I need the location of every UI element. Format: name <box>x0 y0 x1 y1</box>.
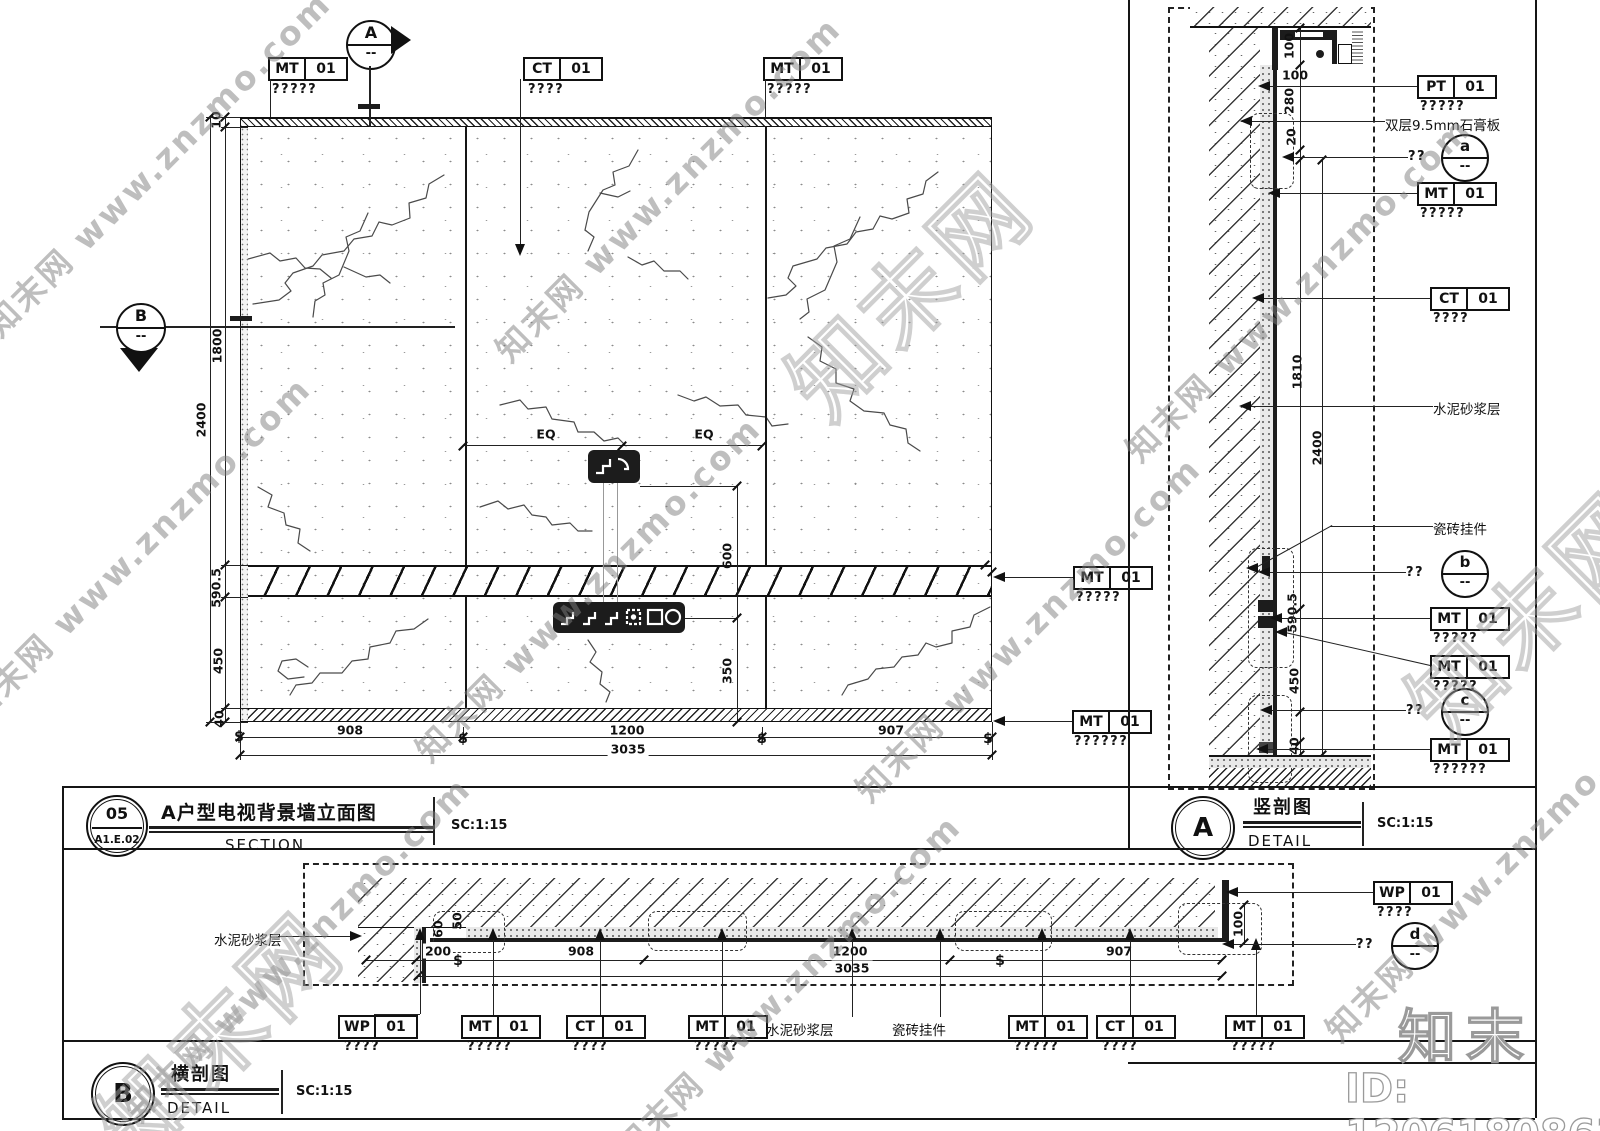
scale-label: SC:1:15 <box>1377 816 1433 831</box>
dim-break: $ <box>983 731 993 747</box>
leader-line <box>520 79 521 247</box>
clip-zone <box>1250 113 1294 189</box>
leader-line <box>940 938 941 1017</box>
tag-code: MT <box>690 1017 726 1037</box>
dim-line <box>1300 28 1301 755</box>
arrow-left-icon <box>1239 401 1251 411</box>
tag-code: CT <box>525 59 561 79</box>
detail-title-bubble: A <box>1171 796 1235 860</box>
arrow-left-icon <box>1282 152 1294 162</box>
tag-code: MT <box>463 1017 499 1037</box>
tag-num: 01 <box>1134 1017 1174 1037</box>
ceiling-strip <box>240 117 992 127</box>
material-tag: MT 01 <box>268 57 348 81</box>
floor-screed <box>1209 757 1371 768</box>
downlight-dot <box>1316 50 1324 58</box>
tag-note: ?????? <box>1074 734 1128 749</box>
arrow-left-icon <box>993 716 1005 726</box>
leader-line <box>1270 572 1406 573</box>
arrow-left-icon <box>1260 705 1272 715</box>
drawing-title: A户型电视背景墙立面图 <box>161 798 377 825</box>
detail-letter: d <box>1393 924 1437 947</box>
dim-break: $ <box>757 731 767 747</box>
eq-label-left: EQ <box>536 427 555 442</box>
arrow-left-icon <box>1222 939 1234 949</box>
panel-divider <box>765 597 767 708</box>
tag-code: CT <box>1098 1017 1134 1037</box>
detail-dash: -- <box>1393 947 1437 964</box>
dim-break: $ <box>234 729 244 745</box>
leader-line <box>1264 298 1430 299</box>
title-tick <box>433 797 435 845</box>
detail-letter: b <box>1443 552 1487 575</box>
tag-num: 01 <box>561 59 601 79</box>
cad-sheet: EQ EQ 600 350 2400 10 1800 590.5 450 40 <box>0 0 1600 1131</box>
arrow-up-icon <box>1037 928 1047 940</box>
tag-code: MT <box>1419 184 1455 204</box>
tag-num: 01 <box>604 1017 644 1037</box>
leader-line <box>1294 157 1408 158</box>
detail-bubble-d: d -- <box>1391 922 1439 970</box>
leader-line <box>1042 938 1043 1015</box>
tag-note: ????? <box>272 82 317 97</box>
tile-layer <box>430 938 1222 942</box>
metal-band <box>248 565 992 597</box>
detail-title: 横剖图 <box>171 1060 231 1086</box>
tag-note: ????? <box>1420 99 1465 114</box>
detail-subtitle: DETAIL <box>167 1099 231 1117</box>
eq-label-right: EQ <box>694 427 713 442</box>
material-tag: MT 01 <box>1073 566 1153 590</box>
leader-line <box>1251 406 1433 407</box>
leader-line <box>1000 721 1072 722</box>
tag-code: WP <box>340 1017 376 1037</box>
leader-line <box>1272 710 1406 711</box>
title-rule <box>149 826 433 829</box>
dim-60: 60 <box>431 920 446 937</box>
leader-line <box>278 936 352 937</box>
tag-code: MT <box>1432 657 1468 677</box>
tag-num: 01 <box>1468 740 1508 760</box>
dim-w2: 1200 <box>610 723 645 738</box>
dim-1810: 1810 <box>1290 355 1305 390</box>
dim-280: 280 <box>1282 88 1297 114</box>
leader-line <box>270 79 271 117</box>
tag-code: MT <box>1227 1017 1263 1037</box>
mortar-left-label: 水泥砂浆层 <box>214 929 282 949</box>
ext-line <box>221 127 248 128</box>
tag-num: 01 <box>1111 568 1151 588</box>
tag-code: PT <box>1419 77 1455 97</box>
clip-zone <box>648 911 747 951</box>
arrow-left-icon <box>1275 627 1287 637</box>
marker-letter: B <box>118 305 164 329</box>
tag-num: 01 <box>1110 712 1150 732</box>
image-id: ID: 1206180863 <box>1345 1066 1600 1131</box>
section-marker-a: A -- <box>346 20 396 70</box>
material-tag: CT 01 <box>1430 287 1510 311</box>
dim-lower: 450 <box>211 648 226 674</box>
arrow-left-icon <box>1252 293 1264 303</box>
detail-title: 竖剖图 <box>1253 793 1313 819</box>
conduit-line <box>617 483 618 602</box>
material-tag: MT 01 <box>1430 738 1510 762</box>
arrow-left-icon <box>1258 81 1270 91</box>
site-logo: 知末 <box>1398 990 1534 1074</box>
dim-200: 200 <box>423 944 453 959</box>
material-tag: CT 01 <box>523 57 603 81</box>
floor-hatch <box>1209 768 1371 786</box>
material-tag: MT 01 <box>1430 607 1510 631</box>
ceiling-slab-hatch <box>1190 7 1371 28</box>
leader-line <box>1234 944 1356 945</box>
tag-code: MT <box>1074 712 1110 732</box>
curtain-fabric <box>1352 30 1363 64</box>
dim-907: 907 <box>1106 944 1132 959</box>
dim-break: $ <box>995 953 1005 969</box>
tag-num: 01 <box>1455 184 1495 204</box>
arrow-right-icon <box>350 931 362 941</box>
media-console <box>553 602 685 633</box>
eq-dim-line <box>463 445 762 446</box>
ceiling-edge <box>1272 28 1278 70</box>
detail-letter: a <box>1443 136 1487 159</box>
dim-line <box>737 486 738 722</box>
tag-note: ?????? <box>1433 762 1487 777</box>
title-tick <box>1362 802 1364 846</box>
tag-code: MT <box>765 59 801 79</box>
material-tag: CT 01 <box>566 1015 646 1039</box>
tag-note: ????? <box>1076 590 1121 605</box>
dim-total-height: 2400 <box>194 403 209 438</box>
tag-num: 01 <box>1455 77 1495 97</box>
material-tag: MT 01 <box>1008 1015 1088 1039</box>
dim-1200: 1200 <box>833 944 868 959</box>
dim-console-height: 350 <box>720 658 735 684</box>
title-rule <box>149 831 433 833</box>
tag-num: 01 <box>306 59 346 79</box>
dim-break: $ <box>453 953 463 969</box>
leader-line <box>1252 121 1385 122</box>
tag-note: ???? <box>1433 311 1469 326</box>
mortar-layer <box>466 927 1218 938</box>
arrow-left-icon <box>1268 188 1280 198</box>
tv-socket-box <box>588 450 640 483</box>
arrow-left-icon <box>1246 563 1258 573</box>
arrow-up-icon <box>935 928 945 940</box>
mortar-label: 水泥砂浆层 <box>1433 398 1501 418</box>
leader-line <box>1268 749 1430 750</box>
detail-bubble-c: c -- <box>1441 688 1489 736</box>
dim-base: 40 <box>212 710 227 727</box>
dim-upper: 1800 <box>210 329 225 364</box>
section-cut-tick <box>358 104 380 109</box>
tag-code: WP <box>1375 883 1411 903</box>
leader-line <box>1330 526 1433 527</box>
material-tag: MT 01 <box>1417 182 1497 206</box>
material-tag: WP 01 <box>1373 881 1453 905</box>
arrow-up-icon <box>488 928 498 940</box>
dim-top: 10 <box>209 111 224 128</box>
leader-line <box>685 618 737 619</box>
leader-line <box>1238 892 1373 893</box>
dim-line <box>366 960 1222 961</box>
arrow-left-icon <box>1270 613 1282 623</box>
frame-line <box>62 786 64 1118</box>
frame-line <box>62 848 1535 850</box>
detail-bubble-b: b -- <box>1441 550 1489 598</box>
clip-zone <box>1178 903 1262 955</box>
title-rule <box>161 1088 279 1091</box>
wall-edge-strip <box>240 127 248 722</box>
detail-bubble-a: a -- <box>1441 134 1489 182</box>
material-tag: MT 01 <box>1430 655 1510 679</box>
frame-line <box>1535 0 1537 1118</box>
section-cut-line <box>369 66 371 127</box>
leader-line <box>1256 948 1257 1015</box>
scale-label: SC:1:15 <box>296 1084 352 1099</box>
tag-code: MT <box>1432 609 1468 629</box>
title-tick <box>281 1070 283 1114</box>
detail-mark: ?? <box>1406 703 1424 718</box>
tag-note: ???? <box>1377 905 1413 920</box>
dim-100-side: 100 <box>1282 68 1308 83</box>
dim-total-width: 3035 <box>608 742 649 757</box>
leader-line <box>420 938 421 1014</box>
dim-w3: 907 <box>878 723 904 738</box>
leader-line <box>1280 193 1417 194</box>
curtain-box-side <box>1332 30 1337 64</box>
arrow-down-icon <box>515 244 525 256</box>
frame-line <box>62 786 1535 788</box>
detail-mark: ?? <box>1356 937 1374 952</box>
tag-num: 01 <box>1046 1017 1086 1037</box>
tag-num: 01 <box>801 59 841 79</box>
title-rule <box>1243 821 1361 824</box>
tag-code: CT <box>568 1017 604 1037</box>
section-cut-tick <box>230 316 252 321</box>
dim-line <box>225 117 226 722</box>
panel-divider <box>765 127 767 565</box>
panel-divider <box>465 127 467 565</box>
gypsum-label: 双层9.5mm石膏板 <box>1385 114 1500 134</box>
arrow-up-icon <box>847 928 857 940</box>
material-tag: MT 01 <box>1225 1015 1305 1039</box>
material-tag: MT 01 <box>1072 710 1152 734</box>
tag-code: CT <box>1432 289 1468 309</box>
marker-arrow-icon <box>391 26 411 54</box>
conduit-line <box>603 483 604 602</box>
title-rule <box>1243 826 1361 828</box>
frame-line <box>62 1118 1535 1120</box>
detail-letter: A <box>1177 802 1229 854</box>
dim-450: 450 <box>1287 668 1302 694</box>
material-tag: MT 01 <box>688 1015 768 1039</box>
ext-line <box>221 565 248 566</box>
leader-line <box>765 79 766 117</box>
tag-num: 01 <box>1468 657 1508 677</box>
material-tag: MT 01 <box>763 57 843 81</box>
material-tag: PT 01 <box>1417 75 1497 99</box>
arrow-up-icon <box>1125 928 1135 940</box>
detail-mark: ?? <box>1408 149 1426 164</box>
leader-line <box>600 938 601 1015</box>
tile-clip <box>1258 600 1274 612</box>
arrow-left-icon <box>1240 116 1252 126</box>
scale-label: SC:1:15 <box>451 818 507 833</box>
detail-dash: -- <box>1443 159 1487 176</box>
dim-100-top: 100 <box>1282 33 1297 59</box>
dim-line <box>210 117 211 722</box>
panel-divider <box>465 597 467 708</box>
tag-note: ????? <box>1420 206 1465 221</box>
tag-num: 01 <box>726 1017 766 1037</box>
arrow-up-icon <box>717 928 727 940</box>
dim-line <box>418 976 1222 977</box>
arrow-up-icon <box>595 928 605 940</box>
dim-band: 590.5 <box>209 568 224 608</box>
title-rule <box>161 1093 279 1095</box>
tag-num: 01 <box>499 1017 539 1037</box>
tag-note: ???? <box>528 82 564 97</box>
curtain-track <box>1338 44 1352 64</box>
frame-line <box>62 1040 1535 1042</box>
tag-note: ????? <box>767 82 812 97</box>
tag-code: MT <box>270 59 306 79</box>
clip-mid-label: 瓷砖挂件 <box>892 1019 946 1039</box>
leader-line <box>1130 938 1131 1015</box>
dim-100: 100 <box>1231 911 1246 937</box>
dim-2400: 2400 <box>1310 431 1325 466</box>
leader-line <box>1000 577 1073 578</box>
leader-line <box>1282 618 1430 619</box>
arrow-left-icon <box>1258 567 1270 577</box>
clip-label: 瓷砖挂件 <box>1433 518 1487 538</box>
tag-code: MT <box>1010 1017 1046 1037</box>
mortar-mid-label: 水泥砂浆层 <box>766 1019 834 1039</box>
tag-num: 01 <box>1263 1017 1303 1037</box>
drawing-number: 05 <box>92 801 142 829</box>
material-tag: WP 01 <box>338 1015 418 1039</box>
tag-note: ????? <box>1433 631 1478 646</box>
marker-dash: -- <box>348 46 394 64</box>
material-tag: CT 01 <box>1096 1015 1176 1039</box>
arrow-left-icon <box>1256 744 1268 754</box>
arrow-left-icon <box>1226 887 1238 897</box>
tag-num: 01 <box>1468 289 1508 309</box>
dim-908: 908 <box>568 944 594 959</box>
leader-line <box>640 486 737 487</box>
tag-num: 01 <box>1411 883 1451 903</box>
detail-mark: ?? <box>1406 565 1424 580</box>
ext-line <box>221 597 248 598</box>
leader-line <box>1270 86 1417 87</box>
marker-letter: A <box>348 22 394 46</box>
leader-line <box>852 938 853 1017</box>
tag-num: 01 <box>1468 609 1508 629</box>
detail-dash: -- <box>1443 575 1487 592</box>
dim-tv-height: 600 <box>720 543 735 569</box>
dim-break: $ <box>458 731 468 747</box>
tag-num: 01 <box>376 1017 416 1037</box>
marker-dash: -- <box>118 329 164 347</box>
detail-title-bubble: B <box>91 1062 155 1126</box>
base-strip <box>248 708 992 722</box>
material-tag: MT 01 <box>461 1015 541 1039</box>
detail-letter: B <box>97 1068 149 1120</box>
tag-code: MT <box>1432 740 1468 760</box>
ext-line <box>221 708 248 709</box>
dim-50: 50 <box>450 912 465 929</box>
dim-w1: 908 <box>337 723 363 738</box>
arrow-up-icon <box>415 928 425 940</box>
tag-code: MT <box>1075 568 1111 588</box>
arrow-left-icon <box>993 572 1005 582</box>
drawing-subtitle: SECTION <box>225 836 305 854</box>
detail-dash: -- <box>1443 713 1487 730</box>
wall-return-hatch <box>358 928 414 982</box>
section-marker-b: B -- <box>116 303 166 353</box>
leader-line <box>493 938 494 1015</box>
frame-line <box>1128 0 1130 848</box>
detail-letter: c <box>1443 690 1487 713</box>
leader-line <box>722 938 723 1015</box>
